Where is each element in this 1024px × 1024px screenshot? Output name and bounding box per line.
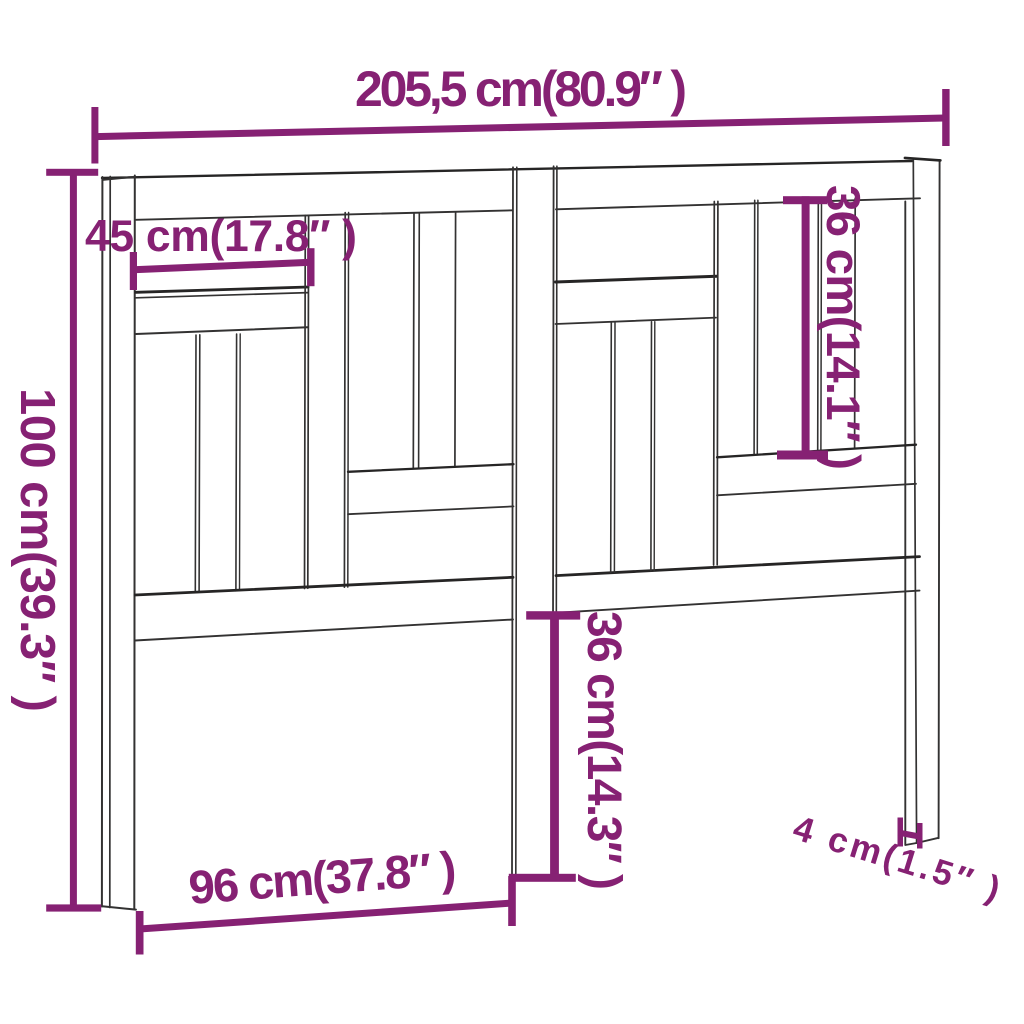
svg-text:205,5 cm(80.9″ ): 205,5 cm(80.9″ ) [355,61,687,117]
svg-text:45 cm(17.8″ ): 45 cm(17.8″ ) [85,212,357,261]
svg-text:36 cm(14.1″ ): 36 cm(14.1″ ) [816,185,869,470]
svg-text:100 cm(39.3″ ): 100 cm(39.3″ ) [10,388,64,712]
svg-text:36 cm(14.3″ ): 36 cm(14.3″ ) [577,611,630,890]
